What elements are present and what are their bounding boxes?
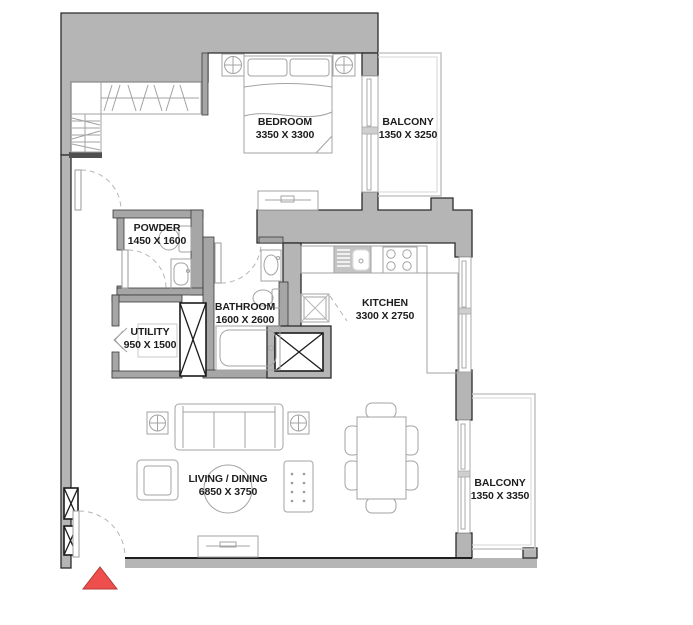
dining-chair-icon [366, 403, 396, 418]
room-dims: 1450 X 1600 [128, 235, 186, 248]
room-dims: 1600 X 2600 [215, 314, 275, 327]
door-swing-icon [73, 511, 125, 557]
door-swing-icon [122, 250, 166, 288]
room-label-living-dining: LIVING / DINING 6850 X 3750 [188, 473, 267, 498]
nightstand-icon [222, 54, 244, 76]
floor-plan-drawing [0, 0, 693, 625]
shelf-icon [71, 114, 101, 152]
kitchen-sink-icon [334, 246, 371, 273]
room-label-utility: UTILITY 950 X 1500 [124, 326, 177, 351]
room-name: KITCHEN [356, 297, 414, 310]
room-label-bedroom: BEDROOM 3350 X 3300 [256, 116, 314, 141]
wardrobe-icon [71, 82, 201, 114]
living-furniture [137, 403, 418, 557]
side-table-icon [288, 412, 309, 434]
door-swing-icon [75, 170, 121, 210]
window-icon [458, 420, 470, 533]
counter-icon [427, 273, 458, 373]
floor-plan: BEDROOM 3350 X 3300 BALCONY 1350 X 3250 … [0, 0, 693, 625]
shaft-icon [180, 303, 206, 376]
balcony-railing-icon [472, 394, 535, 549]
tv-console-icon [198, 536, 258, 557]
dining-table-icon [357, 417, 406, 499]
window-icon [362, 76, 378, 192]
coffee-table-icon [284, 461, 313, 512]
side-table-icon [147, 412, 168, 434]
room-label-balcony-lower: BALCONY 1350 X 3350 [471, 477, 529, 502]
room-name: BALCONY [471, 477, 529, 490]
door-swing-icon [215, 243, 261, 283]
nightstand-icon [333, 54, 355, 76]
room-dims: 950 X 1500 [124, 339, 177, 352]
armchair-icon [137, 460, 178, 500]
room-label-balcony-upper: BALCONY 1350 X 3250 [379, 116, 437, 141]
entrance-marker [83, 567, 117, 589]
room-name: BALCONY [379, 116, 437, 129]
wall-stub [69, 152, 102, 158]
dining-set [345, 403, 418, 513]
room-dims: 3350 X 3300 [256, 129, 314, 142]
window-icon [459, 257, 471, 372]
room-dims: 1350 X 3250 [379, 129, 437, 142]
room-name: LIVING / DINING [188, 473, 267, 486]
stove-icon [383, 247, 417, 273]
room-dims: 1350 X 3350 [471, 490, 529, 503]
room-label-bathroom: BATHROOM 1600 X 2600 [215, 301, 275, 326]
sink-icon [171, 259, 191, 290]
room-name: POWDER [128, 222, 186, 235]
room-name: BATHROOM [215, 301, 275, 314]
room-name: BEDROOM [256, 116, 314, 129]
washing-machine-icon [301, 294, 347, 322]
tv-console-icon [258, 191, 318, 210]
dining-chair-icon [366, 498, 396, 513]
room-dims: 6850 X 3750 [188, 486, 267, 499]
room-name: UTILITY [124, 326, 177, 339]
room-dims: 3300 X 2750 [356, 310, 414, 323]
sofa-icon [175, 404, 283, 450]
room-label-powder: POWDER 1450 X 1600 [128, 222, 186, 247]
sink-icon [261, 250, 281, 281]
bedroom-left-wall [202, 53, 208, 115]
room-label-kitchen: KITCHEN 3300 X 2750 [356, 297, 414, 322]
